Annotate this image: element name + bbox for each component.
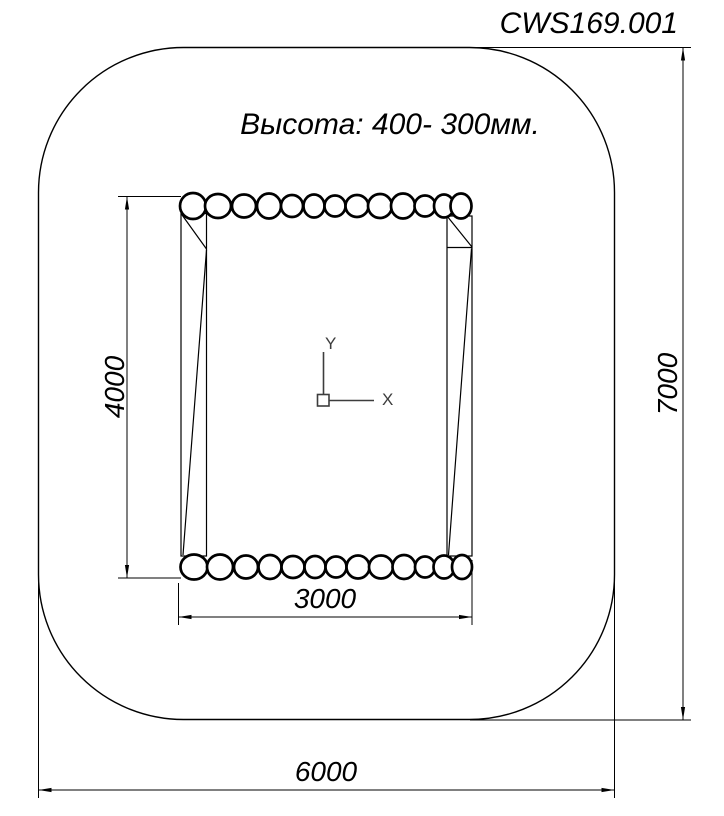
log-circle [347, 556, 370, 579]
log-circle [346, 195, 369, 217]
dimension-text: 7000 [652, 352, 683, 415]
ucs-y-label: Y [325, 334, 336, 353]
drawing-sheet: CWS169.001 Высота: 400- 300мм. [0, 0, 724, 816]
log-circle [232, 195, 256, 218]
right-post-body [447, 216, 472, 556]
log-circle [305, 556, 326, 578]
log-circle [281, 195, 303, 217]
log-circle [391, 194, 415, 219]
arrowhead-up [681, 48, 685, 61]
log-circle [368, 194, 392, 218]
left-post-bracing [181, 214, 207, 556]
log-circle [393, 555, 416, 579]
log-circle [259, 555, 282, 579]
arrowhead-left [179, 615, 192, 619]
log-circle [326, 557, 347, 578]
drawing-number: CWS169.001 [500, 7, 678, 40]
log-circle [369, 556, 393, 579]
arrowhead-down [681, 707, 685, 720]
right-post-bracing [447, 216, 472, 555]
dimension-text: 6000 [295, 756, 358, 787]
log-circle [325, 196, 346, 217]
log-circle [181, 555, 208, 580]
log-circle [234, 556, 258, 579]
log-circle [452, 555, 472, 579]
left-post-body [181, 214, 207, 557]
arrowhead-left [39, 788, 52, 792]
top-log-row [180, 193, 472, 219]
arrowhead-right [459, 615, 472, 619]
height-note: Высота: 400- 300мм. [240, 108, 540, 141]
dimension-outer-height: 7000 [470, 48, 691, 721]
log-circle [304, 195, 325, 218]
log-circle [180, 193, 206, 219]
arrowhead-up [125, 197, 129, 210]
right-post [447, 216, 472, 556]
arrowhead-right [602, 788, 615, 792]
left-post [181, 214, 207, 557]
arrowhead-down [125, 565, 129, 578]
log-circle [257, 194, 281, 219]
ucs-x-label: X [382, 390, 393, 409]
technical-drawing-canvas: CWS169.001 Высота: 400- 300мм. [0, 0, 724, 816]
dimension-text: 4000 [99, 355, 130, 418]
log-circle [205, 194, 231, 218]
dimension-text: 3000 [294, 583, 357, 614]
ucs-icon: Y X [318, 334, 394, 409]
log-circle [282, 556, 305, 578]
log-circle [415, 557, 435, 578]
log-circle [415, 196, 436, 217]
log-circle [207, 555, 233, 580]
bottom-log-row [181, 555, 473, 580]
log-circle [451, 194, 472, 219]
ucs-origin-square [318, 395, 330, 407]
dimension-inner-height: 4000 [99, 197, 181, 579]
